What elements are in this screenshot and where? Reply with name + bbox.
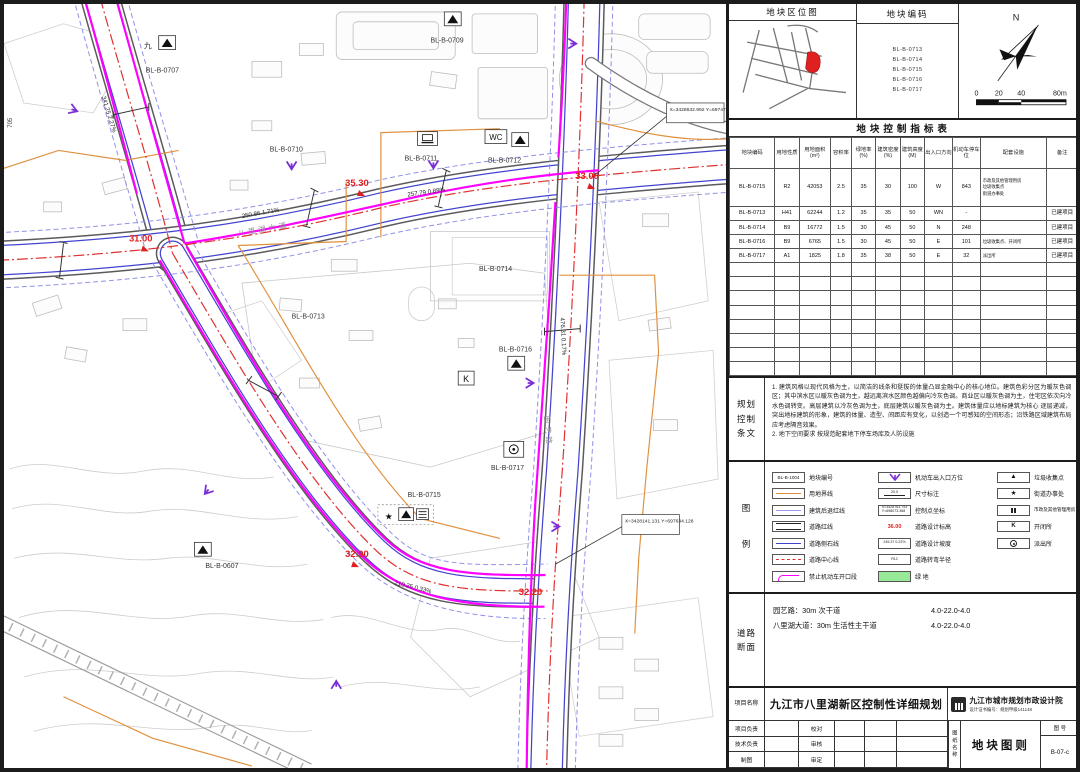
legend-item: 20.0尺寸标注 (878, 486, 994, 503)
legend-item: 道路中心线 (772, 552, 875, 569)
map-area: WC K ★ (4, 4, 729, 768)
edge-label: 705 (8, 117, 14, 128)
plot-label: BL-B-0710 (270, 146, 303, 153)
no-opening-line-icon (772, 571, 805, 582)
legend-item: 道路侧石线 (772, 535, 875, 552)
plot-label: BL-B-0716 (499, 346, 532, 353)
control-point-label: X=3428632.992 Y=697473.506 (669, 107, 726, 113)
sheet-name: 地块图则 (961, 721, 1040, 768)
road-redline-icon (772, 521, 805, 532)
garbage-point-icon (194, 542, 211, 556)
table-row: BL-B-0715R2 420532.5 3530 100W 843市政及其他管… (730, 168, 1078, 206)
sheet-number-label: 图 号 (1041, 721, 1078, 736)
legend-item: 用地界线 (772, 486, 875, 503)
control-point-icon: X=3428763.793 Y=698073.368 (878, 505, 911, 516)
green-space-icon (878, 571, 911, 582)
location-map-title: 地块区位图 (729, 4, 856, 21)
institute-name: 九江市城市规划市政设计院 (969, 695, 1063, 706)
role-label: 技术负责 (729, 737, 765, 753)
svg-text:K: K (463, 374, 469, 384)
table-empty-row (730, 291, 1078, 305)
sheet-number-cell: 图 号 B-07-c (1040, 721, 1078, 768)
table-empty-row (730, 319, 1078, 333)
elevation-label: 35.30 (345, 177, 369, 188)
info-panel: 地块区位图 (729, 4, 1078, 768)
plot-label: BL-B-0711 (405, 155, 438, 162)
legend-column-1: BL-B-1004地块编号 用地界线 建筑后退红线 道路红线 道路侧石线 道路中… (772, 469, 875, 588)
garbage-point-icon (508, 356, 525, 370)
turn-radius-icon: R12 (878, 554, 911, 565)
legend-item: ★街道办事处 (997, 486, 1075, 503)
switch-station-legend-icon: K (997, 521, 1030, 532)
table-empty-row (730, 263, 1078, 277)
legend-item: 派出所 (997, 535, 1075, 552)
title-block-top: 项目名称 九江市八里湖新区控制性详细规划 九江市城市规划市政设计院 设计证书编号… (729, 688, 1078, 721)
table-row: BL-B-0716B9 67651.5 3045 50E 101垃圾收集点、开闭… (730, 235, 1078, 249)
road-section-label: 道路 断面 (729, 594, 765, 686)
svg-text:WC: WC (489, 133, 502, 142)
plan-sheet: WC K ★ (0, 0, 1080, 772)
project-name-label: 项目名称 (729, 688, 765, 720)
garbage-point-icon (512, 133, 529, 147)
police-station-legend-icon (997, 538, 1030, 549)
institute-logo-icon (951, 697, 966, 712)
wc-icon: WC (485, 130, 507, 144)
table-empty-row (730, 347, 1078, 361)
legend-item: BL-B-1004地块编号 (772, 469, 875, 486)
provisions-text: 1. 建筑风格以现代风格为主，以简洁的线条和挺拔的体量凸显金融中心的核心地位。建… (765, 378, 1078, 460)
panel-top-row: 地块区位图 (729, 4, 1078, 120)
elevation-label: 31.00 (129, 233, 153, 244)
road-section-item: 八里湖大道：30m 生活性主干道 4.0-22.0-4.0 (773, 621, 1070, 631)
control-table-title: 地块控制指标表 (729, 120, 1078, 137)
institute-cell: 九江市城市规划市政设计院 设计证书编号：规划甲级141148 (948, 688, 1078, 720)
signature-grid: 项目负责 校对 技术负责 审核 制图 审定 (729, 721, 948, 768)
institute-cert: 设计证书编号：规划甲级141148 (969, 707, 1063, 713)
legend-item: K开闭所 (997, 519, 1075, 536)
project-name: 九江市八里湖新区控制性详细规划 (765, 688, 948, 720)
elevation-label: 32.90 (345, 548, 369, 559)
svg-text:40: 40 (1017, 90, 1025, 98)
dimension-icon: 20.0 (878, 488, 911, 499)
plot-label: BL-B-0713 (292, 314, 325, 321)
location-minimap-drawing (729, 21, 856, 118)
svg-text:0: 0 (974, 90, 978, 98)
setback-line-icon (772, 505, 805, 516)
legend-item: 禁止机动车开口段 (772, 568, 875, 585)
table-empty-row (730, 277, 1078, 291)
sheet-number: B-07-c (1041, 736, 1078, 768)
role-label: 项目负责 (729, 721, 765, 737)
legend-item: 245.37 0.22%道路设计坡度 (878, 535, 994, 552)
elevation-label: 33.00 (575, 170, 599, 181)
location-highlight (806, 52, 821, 73)
legend-item: 道路红线 (772, 519, 875, 536)
centerline-icon (772, 554, 805, 565)
legend-section: 图 例 BL-B-1004地块编号 用地界线 建筑后退红线 道路红线 道路侧石线… (729, 460, 1078, 592)
check-label: 审定 (799, 752, 835, 768)
elevation-label: 32.20 (519, 586, 543, 597)
plot-label: BL-B-0714 (479, 266, 512, 273)
garbage-point-legend-icon: ▲ (997, 472, 1030, 483)
title-block-rows: 项目负责 校对 技术负责 审核 制图 审定 图纸名称 地块图则 图 号 B-07… (729, 721, 1078, 768)
control-table: 地块编码用地性质 用地面积(m²)容积率 绿地率(%)建筑密度(%) 建筑高度(… (729, 137, 1078, 376)
sheet-info: 图纸名称 地块图则 图 号 B-07-c (948, 721, 1078, 768)
legend-item: 绿 地 (878, 568, 994, 585)
road-section-item: 园艺路：30m 次干道 4.0-22.0-4.0 (773, 606, 1070, 616)
legend-item: 机动车出入口方位 (878, 469, 994, 486)
plot-codes-title: 地块编码 (857, 4, 958, 24)
north-label: N (1013, 12, 1020, 22)
switch-station-icon: K (458, 371, 474, 385)
table-row: BL-B-0714B9 167721.5 3045 50N 248 已建项目 (730, 221, 1078, 235)
svg-text:20: 20 (995, 90, 1003, 98)
garbage-point-icon (444, 12, 461, 26)
plot-code-box-icon: BL-B-1004 (772, 472, 805, 483)
legend-item: R12道路转弯半径 (878, 552, 994, 569)
table-empty-row (730, 333, 1078, 347)
legend-column-2: 机动车出入口方位 20.0尺寸标注 X=3428763.793 Y=698073… (878, 469, 994, 588)
svg-text:80m: 80m (1053, 90, 1067, 98)
location-map-cell: 地块区位图 (729, 4, 857, 118)
check-label: 校对 (799, 721, 835, 737)
table-header-row: 地块编码用地性质 用地面积(m²)容积率 绿地率(%)建筑密度(%) 建筑高度(… (730, 138, 1078, 169)
road-section-body: 园艺路：30m 次干道 4.0-22.0-4.0 八里湖大道：30m 生活性主干… (765, 594, 1078, 686)
table-empty-row (730, 361, 1078, 375)
legend-column-3: ▲垃圾收集点 ★街道办事处 市政及其他管理用房 K开闭所 派出所 (997, 469, 1075, 588)
legend-grid: BL-B-1004地块编号 用地界线 建筑后退红线 道路红线 道路侧石线 道路中… (765, 462, 1078, 592)
legend-item: 36.00道路设计标高 (878, 519, 994, 536)
table-row: BL-B-0717A1 18251.8 3538 50E 32派出所 已建项目 (730, 249, 1078, 263)
plot-label: BL-B-0709 (430, 38, 463, 45)
provisions-section: 规划 控制 条文 1. 建筑风格以现代风格为主，以简洁的线条和挺拔的体量凸显金融… (729, 376, 1078, 460)
map-drawing: WC K ★ (4, 4, 726, 768)
land-boundary-line-icon (772, 488, 805, 499)
jiu-label: 九 (144, 42, 152, 51)
plot-label: BL-B-0607 (205, 563, 238, 570)
table-row: BL-B-0713H41 622441.2 3535 50WN - 已建项目 (730, 207, 1078, 221)
legend-item: X=3428763.793 Y=698073.368控制点坐标 (878, 502, 994, 519)
legend-label: 图 例 (729, 462, 765, 592)
street-office-legend-icon: ★ (997, 488, 1030, 499)
plot-codes-cell: 地块编码 BL-B-0713 BL-B-0714 BL-B-0715 BL-B-… (857, 4, 959, 118)
plot-label: BL-B-0715 (408, 492, 441, 499)
control-table-section: 地块控制指标表 地块编码用地性质 用地面积(m²)容积率 绿地率(%)建筑密度(… (729, 120, 1078, 376)
curb-line-icon (772, 538, 805, 549)
road-section-block: 道路 断面 园艺路：30m 次干道 4.0-22.0-4.0 八里湖大道：30m… (729, 592, 1078, 686)
plot-label: BL-B-0712 (488, 157, 521, 164)
plot-label: BL-B-0717 (491, 465, 524, 472)
municipal-room-legend-icon (997, 505, 1030, 516)
plot-label: BL-B-0707 (146, 67, 179, 74)
entrance-arrow-icon (878, 472, 911, 483)
municipal-room-icon (418, 132, 438, 146)
plot-codes-list: BL-B-0713 BL-B-0714 BL-B-0715 BL-B-0716 … (857, 24, 958, 118)
garbage-point-icon (159, 36, 176, 50)
check-label: 审核 (799, 737, 835, 753)
legend-item: ▲垃圾收集点 (997, 469, 1075, 486)
legend-item: 市政及其他管理用房 (997, 502, 1075, 519)
provisions-label: 规划 控制 条文 (729, 378, 765, 460)
compass-icon (984, 15, 1053, 91)
table-empty-row (730, 305, 1078, 319)
design-slope-icon: 245.37 0.22% (878, 538, 911, 549)
legend-item: 建筑后退红线 (772, 502, 875, 519)
scale-bar: 0 20 40 80m (974, 90, 1066, 105)
title-block: 项目名称 九江市八里湖新区控制性详细规划 九江市城市规划市政设计院 设计证书编号… (729, 686, 1078, 768)
svg-text:★: ★ (385, 512, 393, 522)
role-label: 制图 (729, 752, 765, 768)
control-point-label: X=3428141.131 Y=697634.128 (625, 519, 694, 525)
north-arrow-drawing: N 0 20 40 80m (959, 4, 1078, 118)
design-elevation-icon: 36.00 (878, 521, 911, 532)
sheet-name-label: 图纸名称 (949, 721, 961, 768)
location-minimap (729, 21, 856, 118)
police-station-icon (504, 441, 524, 457)
north-arrow-cell: N 0 20 40 80m (959, 4, 1078, 118)
